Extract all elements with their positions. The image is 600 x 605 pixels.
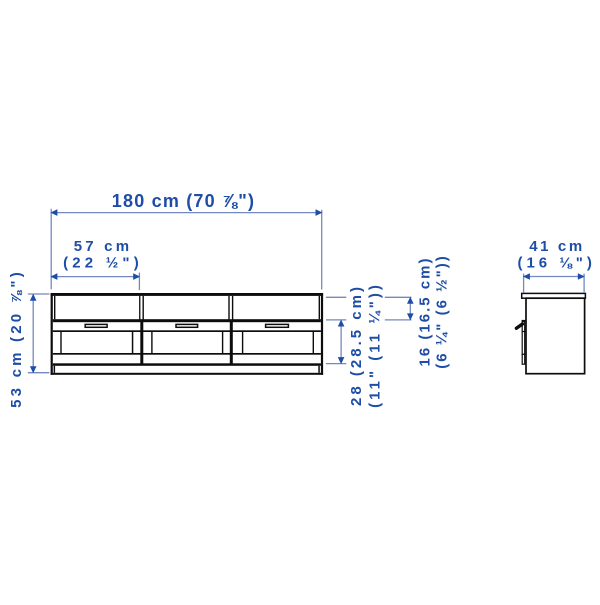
svg-text:28 (28.5 cm): 28 (28.5 cm) <box>348 284 365 406</box>
svg-text:16 (16.5 cm): 16 (16.5 cm) <box>417 257 434 367</box>
svg-text:(11" (11 ¼")): (11" (11 ¼")) <box>367 282 384 408</box>
svg-text:(16 ⅛"): (16 ⅛") <box>517 254 595 271</box>
svg-text:180 cm (70 ⅞"): 180 cm (70 ⅞") <box>112 191 255 211</box>
svg-text:57 cm: 57 cm <box>74 238 133 255</box>
svg-text:(6 ¼" (6 ½")): (6 ¼" (6 ½")) <box>434 254 451 368</box>
svg-text:(22 ½"): (22 ½") <box>63 254 143 271</box>
svg-text:53 cm (20 ⅞"): 53 cm (20 ⅞") <box>8 269 25 408</box>
svg-text:41 cm: 41 cm <box>529 238 585 255</box>
